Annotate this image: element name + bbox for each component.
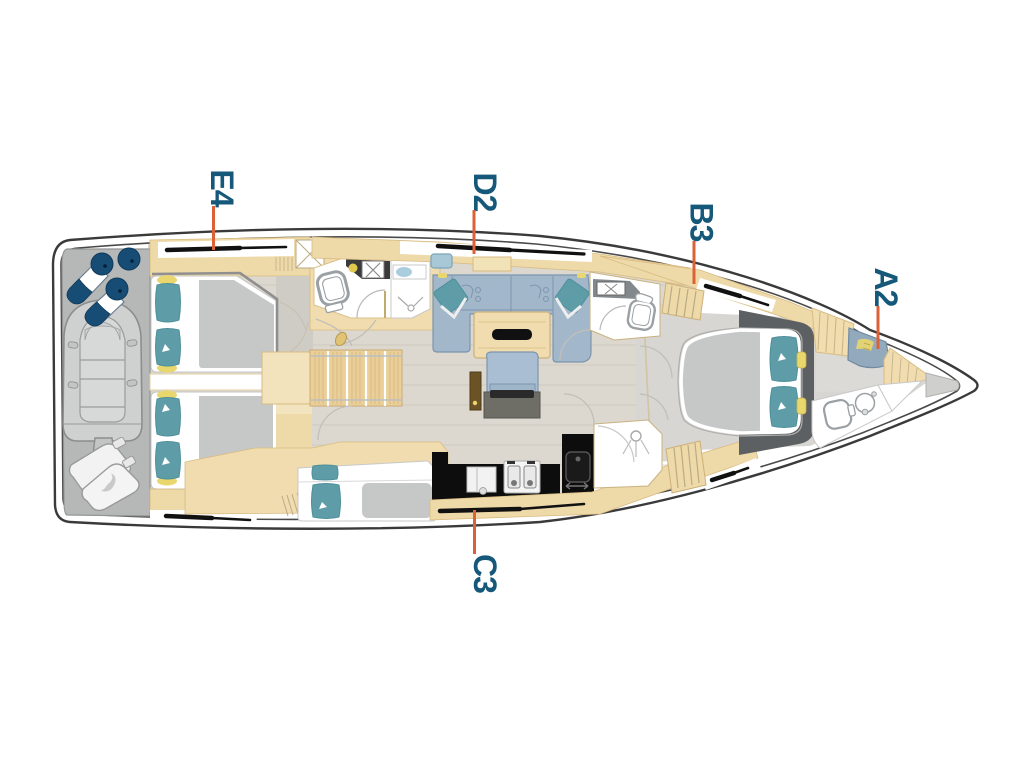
svg-text:C3: C3 (467, 554, 503, 593)
svg-text:A2: A2 (868, 268, 904, 307)
svg-text:E4: E4 (204, 169, 240, 207)
svg-text:D2: D2 (467, 173, 503, 212)
svg-text:B3: B3 (684, 203, 720, 242)
